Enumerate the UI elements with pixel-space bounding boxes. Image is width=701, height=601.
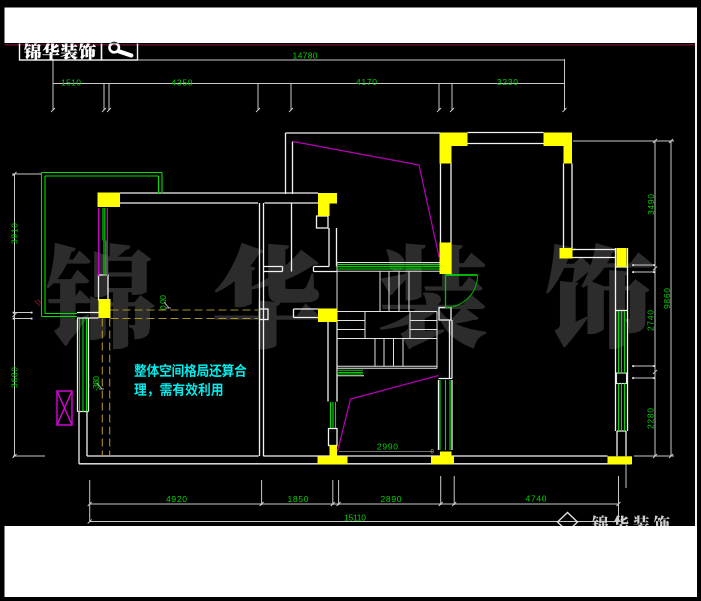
svg-text:4170: 4170 bbox=[356, 77, 377, 87]
svg-text:1510: 1510 bbox=[61, 78, 81, 88]
svg-text:15110: 15110 bbox=[344, 513, 366, 523]
svg-text:3230: 3230 bbox=[497, 77, 518, 87]
svg-text:3490: 3490 bbox=[646, 194, 656, 215]
svg-text:2280: 2280 bbox=[646, 408, 656, 429]
svg-text:4920: 4920 bbox=[166, 494, 187, 504]
svg-text:14780: 14780 bbox=[293, 51, 318, 61]
svg-text:4350: 4350 bbox=[172, 78, 193, 88]
svg-text:3910: 3910 bbox=[10, 223, 20, 244]
svg-text:2990: 2990 bbox=[377, 442, 398, 452]
svg-text:9860: 9860 bbox=[662, 288, 672, 309]
svg-text:2890: 2890 bbox=[381, 494, 402, 504]
svg-text:2740: 2740 bbox=[646, 310, 656, 331]
svg-text:4740: 4740 bbox=[526, 494, 547, 504]
svg-text:3680: 3680 bbox=[10, 367, 20, 388]
svg-text:1850: 1850 bbox=[288, 494, 309, 504]
